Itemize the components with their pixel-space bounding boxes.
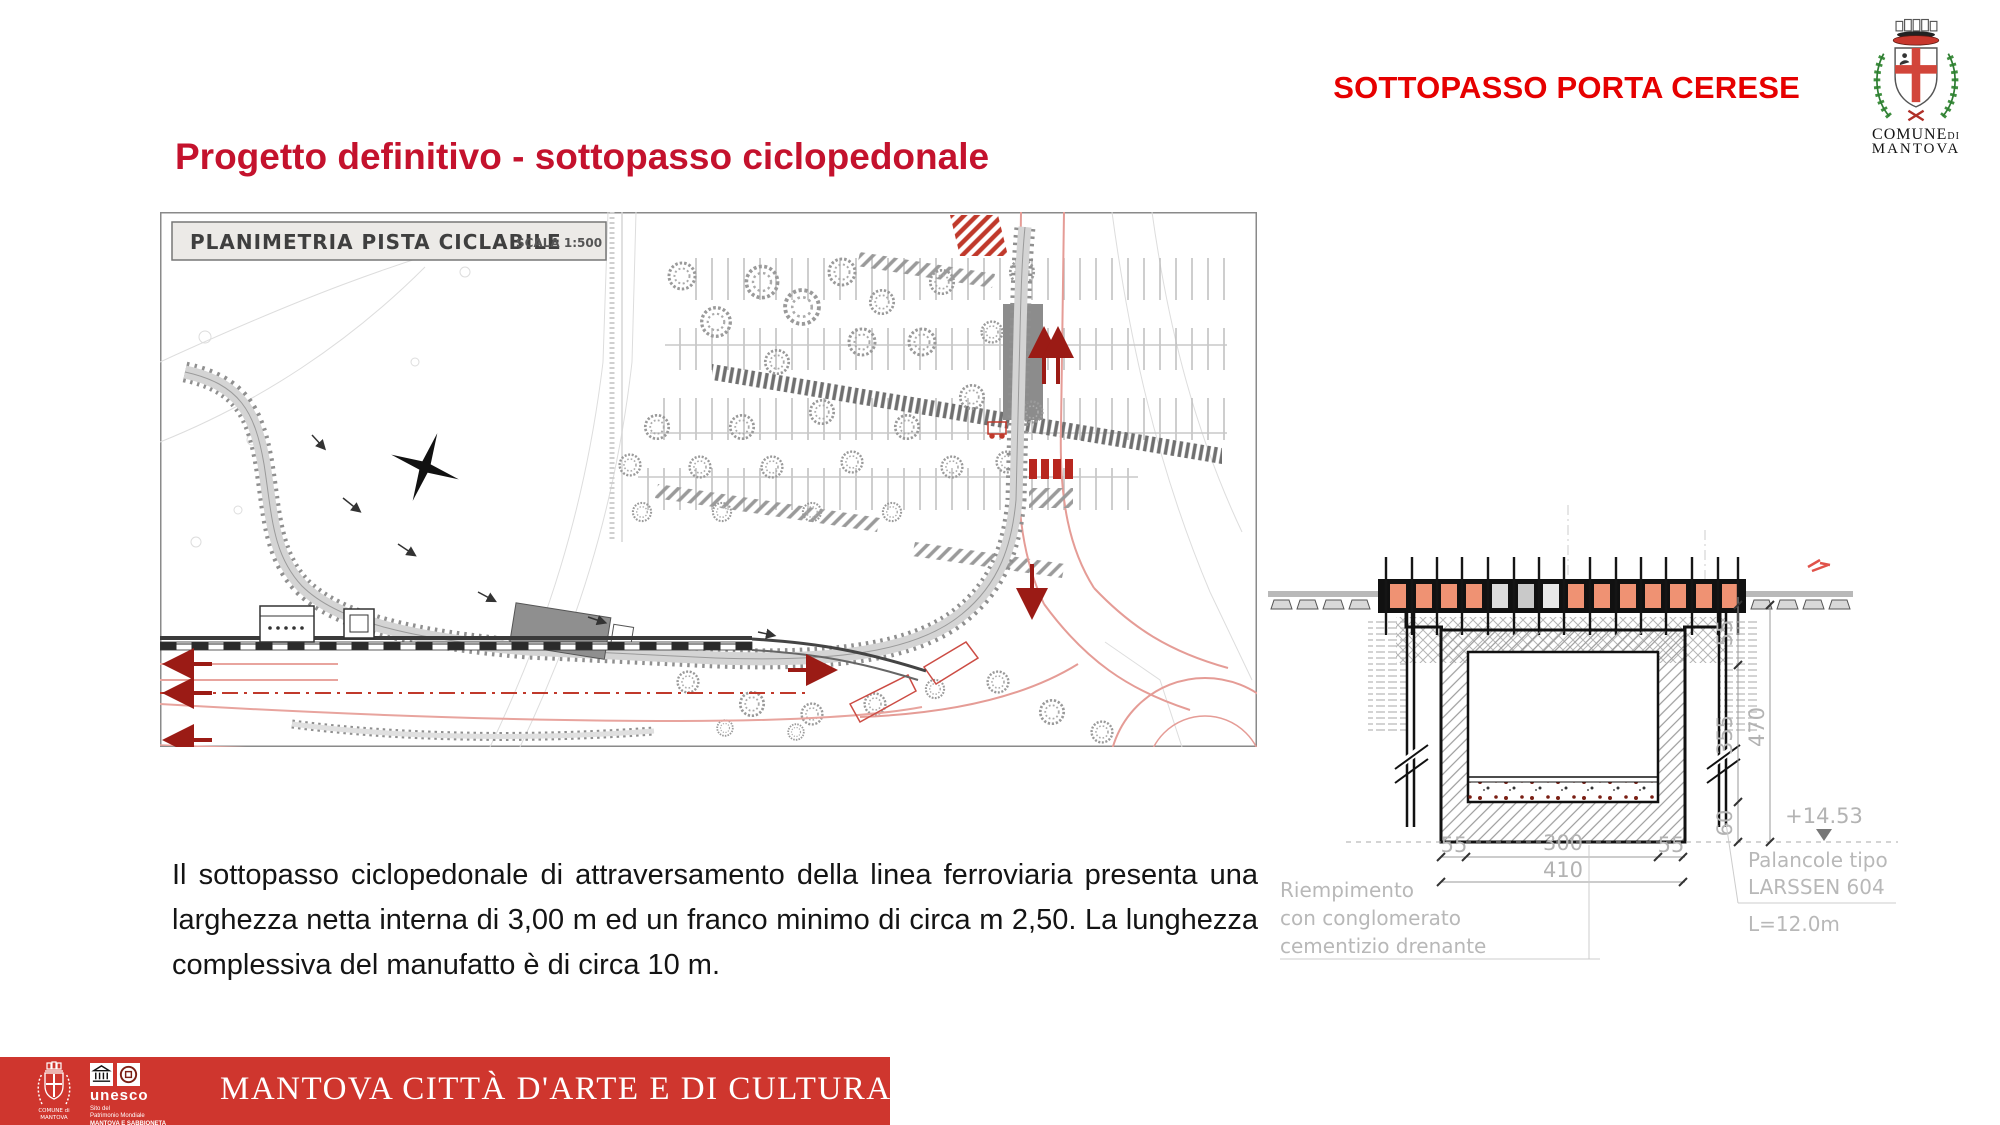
plan-scale: SCALA 1:500	[516, 236, 602, 250]
dim-55-left: 55	[1441, 833, 1468, 857]
dim-300: 300	[1543, 831, 1583, 855]
plan-title: PLANIMETRIA PISTA CICLABILE	[190, 230, 562, 254]
banner-comune-line2: MANTOVA	[40, 1115, 68, 1121]
slide-title: SOTTOPASSO PORTA CERESE	[1000, 70, 1800, 106]
svg-text:L=12.0m: L=12.0m	[1748, 912, 1840, 936]
dim-355: 355	[1713, 715, 1737, 755]
comune-mantova-logo: COMUNEDI MANTOVA	[1846, 10, 1986, 158]
unesco-temple-icon	[90, 1063, 113, 1086]
heritage-emblem-icon	[117, 1063, 140, 1086]
dim-55-right: 55	[1658, 833, 1685, 857]
plan-drawing: PLANIMETRIA PISTA CICLABILE SCALA 1:500	[160, 212, 1257, 747]
dim-410: 410	[1543, 858, 1583, 882]
red-sketch-mark	[1808, 560, 1830, 571]
unesco-subtitle: Sito del Patrimonio Mondiale MANTOVA E S…	[90, 1106, 170, 1125]
banner-comune-line1: COMUNE di	[38, 1108, 70, 1114]
svg-text:LARSSEN 604: LARSSEN 604	[1748, 875, 1885, 899]
plan-panel: PLANIMETRIA PISTA CICLABILE SCALA 1:500	[160, 212, 1257, 747]
banner-coat-of-arms-icon: COMUNE di MANTOVA	[34, 1060, 74, 1122]
svg-text:con conglomerato: con conglomerato	[1280, 906, 1461, 930]
crosswalk-red	[950, 215, 1008, 256]
level-value: +14.53	[1785, 804, 1863, 828]
svg-text:Riempimento: Riempimento	[1280, 878, 1414, 902]
section-drawing: 55 300 55 410 55 355 60 470 +14.53 Riemp…	[1268, 505, 1898, 970]
section-panel: 55 300 55 410 55 355 60 470 +14.53 Riemp…	[1268, 505, 1898, 970]
plan-title-box: PLANIMETRIA PISTA CICLABILE SCALA 1:500	[172, 222, 606, 260]
slide: SOTTOPASSO PORTA CERESE COMUNEDI MANTOVA…	[0, 0, 2000, 1125]
unesco-wordmark: unesco	[90, 1088, 170, 1105]
dim-470: 470	[1745, 707, 1769, 747]
dim-55-top: 55	[1713, 620, 1737, 647]
svg-text:cementizio drenante: cementizio drenante	[1280, 934, 1486, 958]
level-marker-icon	[1816, 829, 1832, 841]
page-title: Progetto definitivo - sottopasso ciclope…	[175, 136, 989, 178]
dim-60: 60	[1713, 810, 1737, 837]
logo-text-line2: MANTOVA	[1846, 141, 1986, 158]
box-culvert	[1406, 613, 1720, 842]
footer-banner: COMUNE di MANTOVA	[0, 1057, 890, 1125]
description-paragraph: Il sottopasso ciclopedonale di attravers…	[172, 853, 1258, 989]
banner-title: MANTOVA CITTÀ D'ARTE E DI CULTURA	[220, 1071, 870, 1108]
coat-of-arms-icon	[1859, 10, 1973, 124]
unesco-block: unesco Sito del Patrimonio Mondiale MANT…	[90, 1063, 170, 1125]
pile-label: Palancole tipo LARSSEN 604 L=12.0m	[1726, 823, 1896, 936]
svg-text:Palancole tipo: Palancole tipo	[1748, 848, 1888, 872]
